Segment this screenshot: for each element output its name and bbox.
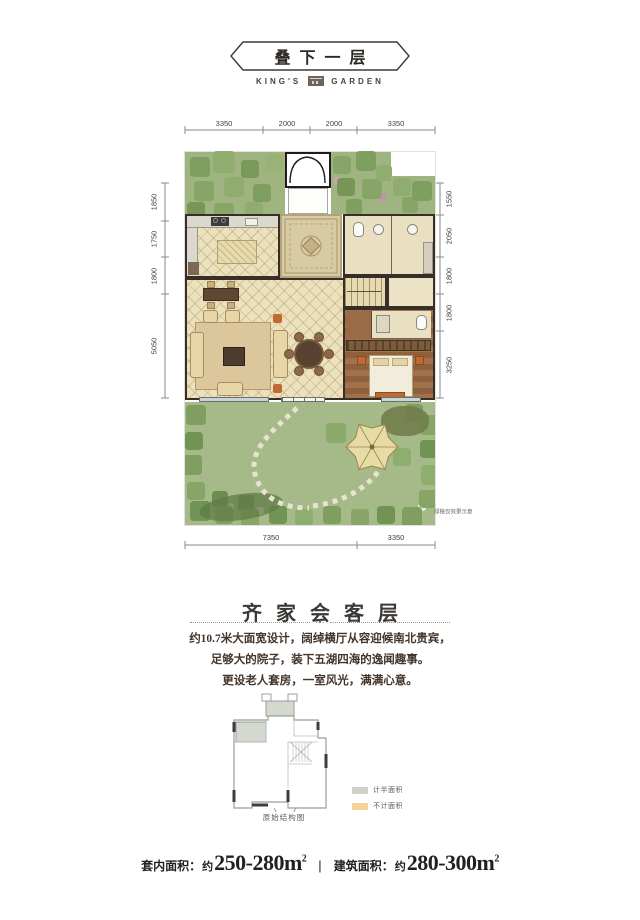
page-title-box: 叠下一层 — [230, 41, 410, 71]
window — [199, 397, 269, 402]
staircase — [343, 276, 387, 308]
inner-area-value: 250-280m2 — [214, 850, 306, 876]
description-line: 足够大的院子，装下五湖四海的逸闻趣事。 — [0, 650, 640, 671]
section-divider: ·•· — [190, 618, 450, 627]
courtyard-paving-icon — [282, 216, 340, 276]
bedside-table — [415, 356, 424, 365]
toilet-icon — [416, 315, 427, 330]
dim-right-4: 1800 — [445, 305, 454, 322]
garden-disclaimer-note: 绿植仅效果示意 — [434, 507, 473, 515]
structure-diagram — [224, 692, 344, 812]
bedroom-suite — [343, 308, 435, 400]
legend-swatch-tan — [352, 803, 368, 810]
dim-left-2: 1750 — [150, 231, 159, 248]
divider-line — [330, 622, 450, 623]
oven-icon — [188, 262, 199, 275]
armchair — [203, 310, 218, 323]
chair — [227, 281, 235, 288]
pillow — [392, 358, 408, 366]
area-separator: | — [318, 858, 321, 873]
bathroom-divider-wall — [391, 216, 392, 274]
divider-ornament: ·•· — [315, 618, 324, 627]
stove-icon — [211, 217, 229, 226]
inner-area-approx: 约 — [202, 858, 213, 874]
gross-area-value: 280-300m2 — [407, 850, 499, 876]
stool — [273, 314, 282, 323]
dining-chair — [294, 366, 304, 376]
floor-plan — [185, 152, 435, 525]
french-door — [281, 397, 325, 402]
brand-right: GARDEN — [331, 77, 384, 86]
kitchen-island — [217, 240, 257, 264]
kitchen-counter-left — [187, 228, 198, 264]
dim-right-3: 1800 — [445, 268, 454, 285]
legend-label: 计半面积 — [373, 785, 403, 795]
dim-left-3: 1800 — [150, 268, 159, 285]
entry-courtyard — [280, 214, 342, 278]
dim-right-1: 1550 — [445, 191, 454, 208]
dining-chair — [284, 349, 294, 359]
half-area-porch — [266, 701, 294, 716]
dim-bottom-2: 3350 — [388, 533, 405, 542]
diagram-caption: 原始结构图 — [224, 812, 344, 823]
description-line: 更设老人套房，一室风光，满满心意。 — [0, 671, 640, 692]
trees — [331, 152, 333, 154]
shower-icon — [376, 315, 390, 333]
garden-bottom — [185, 402, 435, 525]
dining-chair — [294, 332, 304, 342]
brand-line: KING'S GARDEN — [0, 76, 640, 86]
hallway — [387, 276, 435, 308]
dining-chair — [324, 349, 334, 359]
pillow — [373, 358, 389, 366]
bed — [369, 355, 413, 397]
dim-top-1: 3350 — [216, 119, 233, 128]
dining-chair — [314, 366, 324, 376]
cabinet — [423, 242, 433, 274]
dim-top-2: 2000 — [279, 119, 296, 128]
sofa — [217, 382, 243, 396]
wardrobe — [346, 340, 431, 351]
dim-right-5: 3250 — [445, 357, 454, 374]
dim-bottom-1: 7350 — [263, 533, 280, 542]
diagram-legend: 计半面积 不计面积 — [352, 785, 403, 817]
brochure-page: 叠下一层 KING'S GARDEN 3350 2000 2000 3350 1… — [0, 0, 640, 920]
sofa — [190, 332, 204, 378]
entrance-gate — [285, 152, 331, 188]
toilet-icon — [353, 222, 364, 237]
sink-icon — [373, 224, 384, 235]
stool — [273, 384, 282, 393]
gross-area-label: 建筑面积： — [334, 857, 394, 874]
half-area-room — [236, 722, 266, 742]
armchair — [225, 310, 240, 323]
ensuite-bathroom — [372, 311, 431, 339]
gate-door-swings-icon — [287, 154, 328, 185]
page-title: 叠下一层 — [230, 41, 410, 71]
entry-porch — [288, 188, 328, 214]
bedroom-entry — [346, 311, 372, 339]
dim-left-4: 5050 — [150, 338, 159, 355]
dim-top-3: 2000 — [326, 119, 343, 128]
legend-item: 不计面积 — [352, 801, 403, 811]
dining-table — [294, 339, 324, 369]
brand-left: KING'S — [256, 77, 301, 86]
inner-area-label: 套内面积： — [141, 857, 201, 874]
trees — [185, 152, 187, 154]
living-room-rug — [195, 322, 271, 390]
coffee-table — [223, 347, 245, 366]
dim-right-2: 2050 — [445, 228, 454, 245]
kitchen — [185, 214, 280, 278]
bathroom-top — [343, 214, 435, 276]
legend-label: 不计面积 — [373, 801, 403, 811]
sink-icon — [407, 224, 418, 235]
dim-top-4: 3350 — [388, 119, 405, 128]
description-line: 约10.7米大面宽设计，阔绰横厅从容迎候南北贵宾， — [0, 629, 640, 650]
side-dining-table — [203, 288, 239, 301]
garden-far-right — [391, 176, 435, 214]
brand-emblem-icon — [308, 76, 324, 86]
chair — [227, 302, 235, 309]
description-paragraph: 约10.7米大面宽设计，阔绰横厅从容迎候南北贵宾， 足够大的院子，装下五湖四海的… — [0, 629, 640, 692]
kitchen-sink-icon — [245, 218, 258, 226]
divider-line — [190, 622, 310, 623]
chair — [207, 281, 215, 288]
chair — [207, 302, 215, 309]
trees — [391, 176, 393, 178]
dim-left-1: 1850 — [150, 194, 159, 211]
kitchen-counter — [187, 216, 278, 228]
window — [381, 397, 421, 402]
legend-swatch-gray — [352, 787, 368, 794]
legend-item: 计半面积 — [352, 785, 403, 795]
gross-area-approx: 约 — [395, 858, 406, 874]
garden-top-left — [185, 152, 285, 214]
bedside-table — [357, 356, 366, 365]
area-summary: 套内面积： 约 250-280m2 | 建筑面积： 约 280-300m2 — [0, 850, 640, 876]
dining-chair — [314, 332, 324, 342]
living-dining-room — [185, 278, 345, 400]
garden-top-right — [331, 152, 391, 214]
parasol-icon — [345, 420, 399, 474]
